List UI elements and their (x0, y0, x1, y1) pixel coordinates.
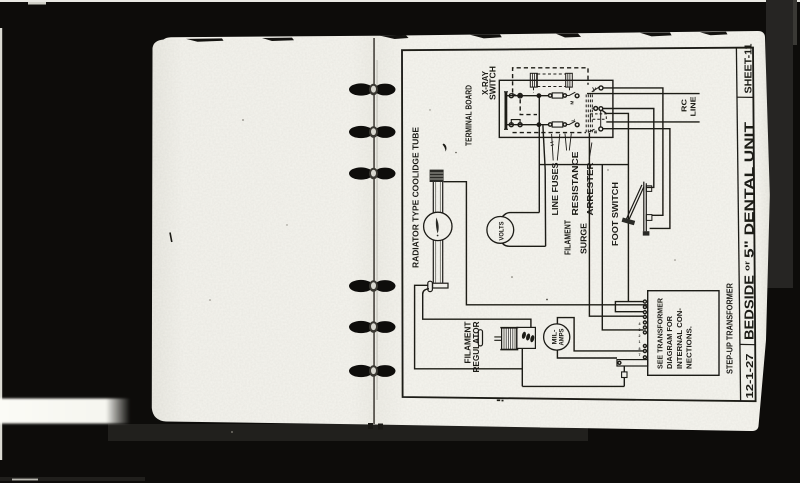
svg-text:SHEET-11: SHEET-11 (744, 43, 755, 93)
svg-text:4: 4 (639, 322, 641, 326)
svg-text:STEP-UP TRANSFORMER: STEP-UP TRANSFORMER (726, 283, 735, 374)
svg-text:2: 2 (639, 334, 641, 338)
svg-text:AMPS: AMPS (559, 329, 566, 346)
svg-text:INTERNAL CON-: INTERNAL CON- (675, 307, 684, 369)
svg-text:or: or (743, 261, 752, 271)
svg-text:RC: RC (680, 98, 689, 112)
svg-text:5" DENTAL UNIT: 5" DENTAL UNIT (742, 122, 757, 258)
svg-text:L: L (571, 119, 576, 122)
svg-text:SURGE: SURGE (579, 222, 588, 254)
svg-text:DIAGRAM FOR: DIAGRAM FOR (665, 315, 674, 369)
svg-text:SEE TRANSFORMER: SEE TRANSFORMER (655, 297, 664, 369)
svg-text:12-1-27: 12-1-27 (744, 353, 756, 398)
svg-text:VOLTS: VOLTS (498, 222, 505, 241)
svg-text:M: M (570, 101, 575, 105)
svg-text:LINE: LINE (689, 97, 698, 117)
svg-text:LINE FUSES: LINE FUSES (551, 162, 560, 216)
svg-text:1: 1 (639, 340, 641, 344)
svg-text:REGULATOR: REGULATOR (472, 321, 481, 372)
svg-text:7: 7 (639, 353, 641, 357)
svg-text:FILAMENT: FILAMENT (564, 220, 573, 255)
svg-text:NECTIONS.: NECTIONS. (685, 326, 694, 369)
svg-text:FOOT SWITCH: FOOT SWITCH (610, 182, 620, 246)
svg-text:RESISTANCE: RESISTANCE (571, 151, 580, 216)
svg-text:SWITCH: SWITCH (488, 66, 497, 100)
svg-text:RADIATOR TYPE COOLIDGE TUBE: RADIATOR TYPE COOLIDGE TUBE (411, 127, 421, 268)
svg-text:BEDSIDE: BEDSIDE (742, 275, 757, 340)
svg-text:TERMINAL BOARD: TERMINAL BOARD (465, 85, 474, 146)
svg-text:ARRESTER: ARRESTER (586, 162, 595, 215)
svg-text:MIL-: MIL- (551, 330, 558, 345)
svg-text:3: 3 (639, 328, 641, 332)
